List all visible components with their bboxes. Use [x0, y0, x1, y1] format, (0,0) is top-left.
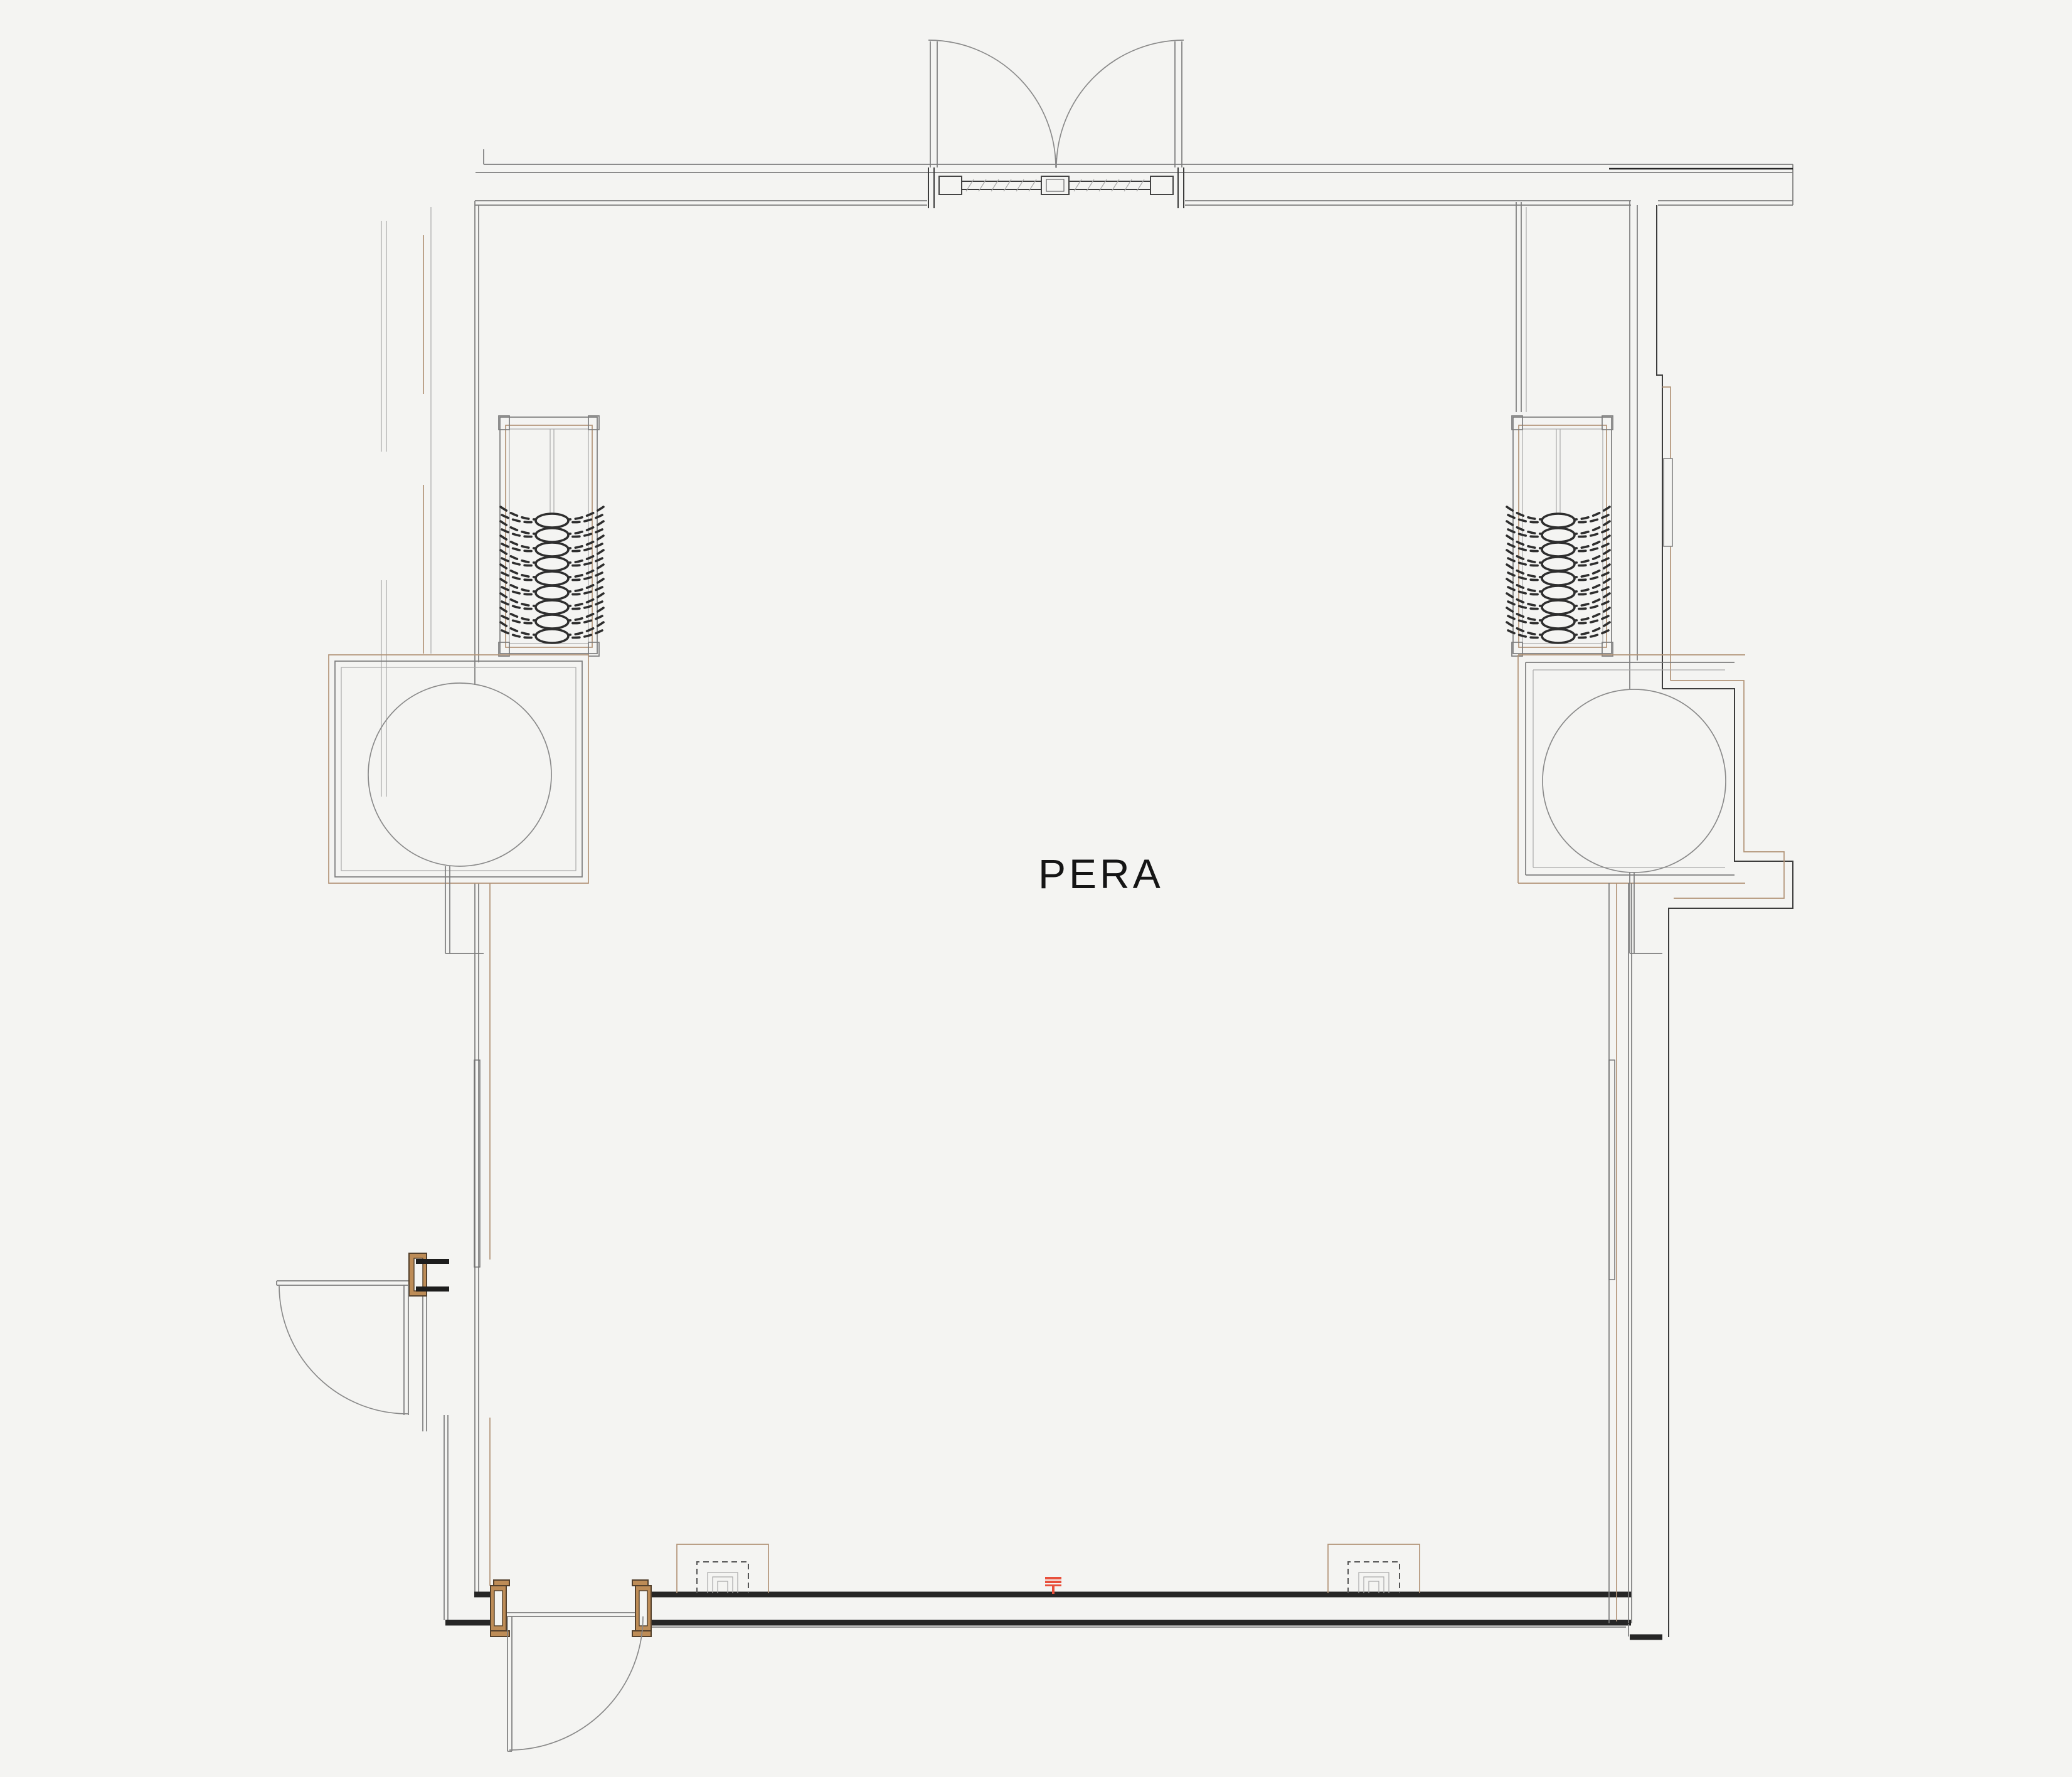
bottom-wall	[445, 1594, 1662, 1637]
right-wall-glazing	[1609, 1060, 1615, 1280]
column-enclosure-left	[329, 655, 588, 953]
floor-box-icon	[1328, 1544, 1420, 1593]
door-swing-arc	[509, 1616, 643, 1750]
right-wall-upper	[1630, 201, 1672, 689]
top-wall	[475, 201, 1793, 205]
floor-plan-svg: PERA	[0, 0, 2072, 1777]
floor-box-icon	[677, 1544, 768, 1593]
side-door-bottom	[491, 1580, 651, 1751]
entry-double-door	[928, 40, 1184, 208]
survey-marker-icon	[1045, 1577, 1061, 1594]
right-exterior-notch	[1662, 681, 1793, 1637]
column-left	[368, 683, 551, 866]
door-leaf	[277, 1281, 408, 1285]
right-wall-lower	[1609, 883, 1632, 1623]
room-label: PERA	[1038, 851, 1164, 897]
right-alcove	[1516, 202, 1526, 412]
column-right	[1543, 689, 1726, 873]
coat-closet-right	[1507, 416, 1613, 656]
exterior-wall-band	[475, 149, 1793, 205]
right-wall-glazing	[1664, 459, 1672, 546]
entry-door-threshold	[928, 167, 1184, 208]
left-wall	[423, 201, 490, 1620]
left-exterior-lines	[381, 207, 431, 797]
door-frame	[491, 1580, 509, 1636]
coat-closet-left	[499, 416, 603, 656]
door-frame	[632, 1580, 651, 1636]
door-swing-arc	[279, 1285, 408, 1414]
